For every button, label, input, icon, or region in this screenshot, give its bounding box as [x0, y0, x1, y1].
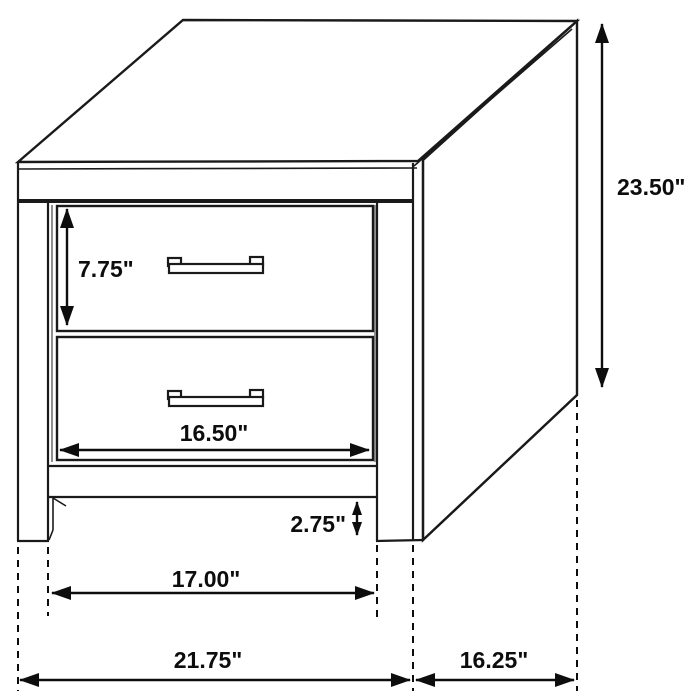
right-leg-bottom-edge	[376, 540, 424, 541]
diagram-canvas: 7.75" 23.50" 16.50" 2.75" 17.00" 21.75" …	[0, 0, 700, 700]
dimension-label-top-drawer-height: 7.75"	[78, 256, 134, 282]
left-leg-wedge-line	[53, 498, 66, 506]
handle-bar	[169, 264, 263, 273]
dimension-label-base-clearance: 2.75"	[290, 511, 346, 537]
left-leg-wedge-foot	[49, 530, 53, 540]
handle-bar	[169, 397, 263, 406]
nightstand-dimension-diagram: 7.75" 23.50" 16.50" 2.75" 17.00" 21.75" …	[0, 0, 700, 700]
dimension-label-side-depth: 16.25"	[460, 647, 528, 673]
top-front-edge-line	[18, 168, 417, 169]
dimension-label-overall-width: 21.75"	[174, 647, 242, 673]
dimension-label-leg-span: 17.00"	[172, 566, 240, 592]
dimension-label-drawer-width: 16.50"	[180, 420, 248, 446]
dimension-label-overall-height: 23.50"	[617, 174, 685, 200]
